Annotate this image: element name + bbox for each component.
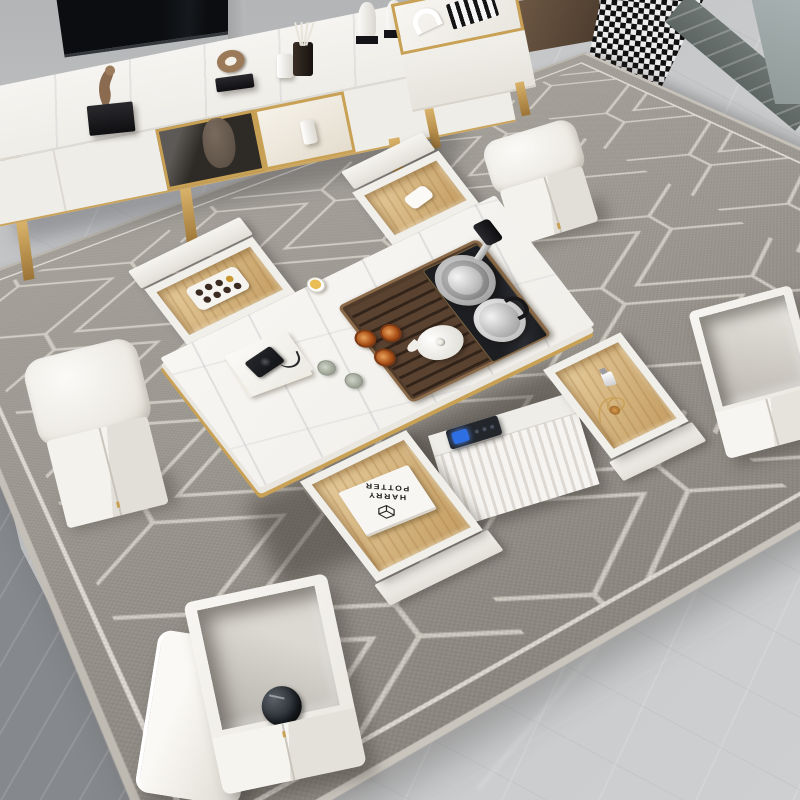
camera-lens bbox=[257, 355, 274, 369]
striped-books bbox=[446, 0, 500, 30]
chocolate bbox=[203, 283, 214, 292]
candle-in-niche bbox=[300, 119, 319, 145]
white-candle bbox=[277, 54, 293, 78]
chocolate bbox=[212, 290, 223, 299]
gold-chocolate bbox=[224, 275, 235, 284]
knot-sculpture bbox=[207, 45, 259, 95]
figurine-base bbox=[356, 36, 378, 44]
stool-seam bbox=[765, 399, 779, 446]
gold-pin bbox=[282, 731, 286, 737]
gold-leg bbox=[16, 221, 34, 281]
chocolate bbox=[232, 282, 243, 291]
chocolate bbox=[222, 286, 233, 295]
headphones bbox=[408, 4, 443, 36]
living-room-scene: HARRY POTTER bbox=[0, 0, 800, 800]
robed-figurine bbox=[358, 2, 376, 40]
cube-logo-icon bbox=[378, 504, 395, 520]
chocolate bbox=[202, 295, 213, 304]
remote-button bbox=[474, 429, 479, 434]
gold-pin bbox=[116, 501, 120, 508]
bronze-figurine bbox=[76, 59, 137, 138]
gold-pin bbox=[556, 223, 561, 230]
sculpture-base bbox=[215, 73, 255, 92]
chocolate bbox=[214, 279, 225, 288]
stool-interior bbox=[699, 295, 800, 407]
sculpture-base bbox=[87, 101, 136, 136]
stool-interior bbox=[197, 586, 340, 730]
remote-button bbox=[482, 427, 487, 432]
book-cover: HARRY POTTER bbox=[364, 479, 409, 520]
knot-ring bbox=[213, 46, 249, 77]
remote-button bbox=[490, 424, 495, 429]
remote-blue-screen bbox=[451, 428, 470, 444]
chocolate bbox=[194, 288, 205, 297]
reed-diffuser bbox=[293, 42, 313, 76]
